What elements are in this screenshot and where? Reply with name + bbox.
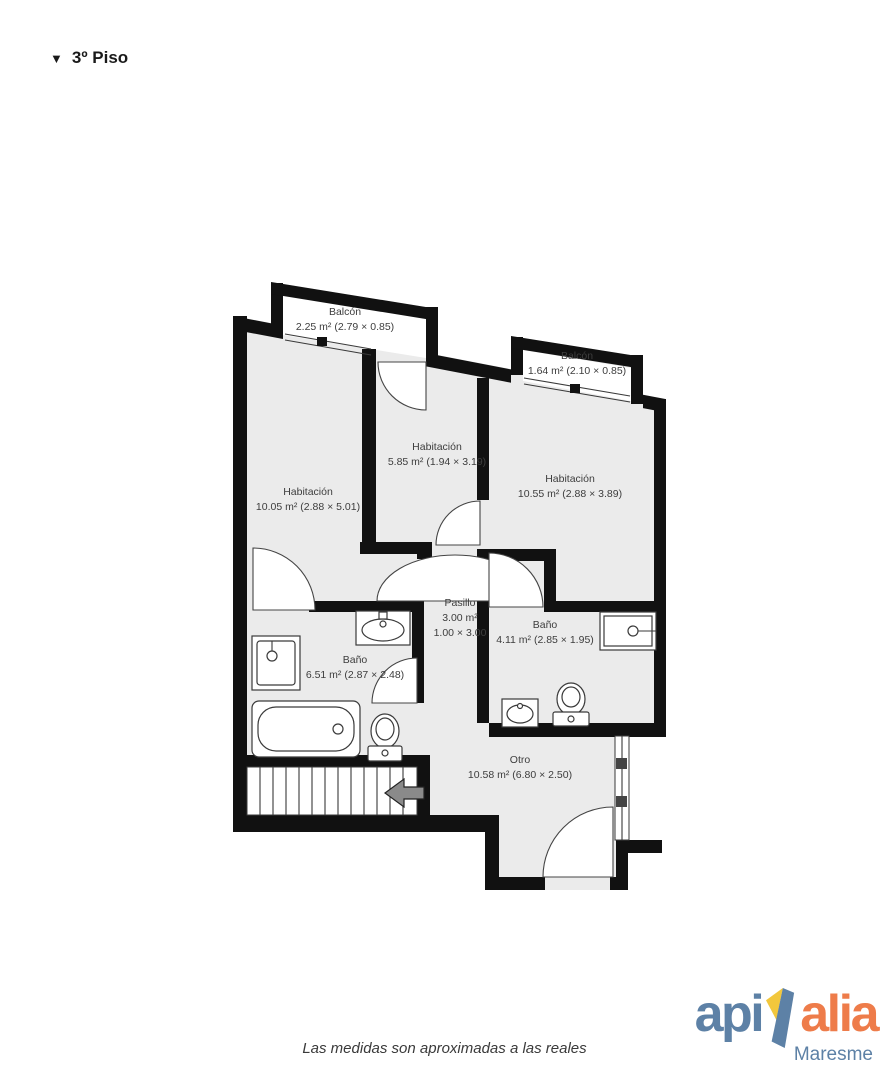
room-details: 10.58 m² (6.80 × 2.50) — [468, 768, 572, 783]
stairs — [247, 767, 424, 815]
room-details: 3.00 m² — [434, 611, 487, 626]
label-bedroom-left: Habitación 10.05 m² (2.88 × 5.01) — [256, 485, 360, 515]
wall-sink-right-faucet — [628, 626, 638, 636]
logo-text-api: api — [695, 988, 763, 1040]
label-balcony-right: Balcón 1.64 m² (2.10 × 0.85) — [528, 349, 626, 379]
vanity-faucet-left — [379, 612, 387, 619]
bottom-right-wall-a — [485, 877, 545, 890]
bedroom-middle-corner-block — [417, 542, 432, 559]
vanity-faucet-dot-left — [380, 621, 386, 627]
toilet-right-button — [568, 716, 574, 722]
room-name: Habitación — [518, 472, 622, 487]
room-details: 5.85 m² (1.94 × 3.19) — [388, 455, 486, 470]
left-wall — [233, 316, 247, 832]
bath-left-top-wall — [309, 601, 415, 612]
label-bathroom-right: Baño 4.11 m² (2.85 × 1.95) — [496, 618, 594, 648]
floor-title: ▼ 3º Piso — [50, 48, 128, 68]
label-bedroom-middle: Habitación 5.85 m² (1.94 × 3.19) — [388, 440, 486, 470]
bottom-left-wall — [233, 815, 499, 832]
label-other: Otro 10.58 m² (6.80 × 2.50) — [468, 753, 572, 783]
label-bathroom-left: Baño 6.51 m² (2.87 × 2.48) — [306, 653, 404, 683]
room-details: 10.55 m² (2.88 × 3.89) — [518, 487, 622, 502]
room-name: Habitación — [388, 440, 486, 455]
bathtub-drain — [333, 724, 343, 734]
railing-right-post — [570, 384, 580, 393]
floorplan-page: ▼ 3º Piso — [0, 0, 889, 1080]
label-hallway: Pasillo 3.00 m² 1.00 × 3.00 — [434, 596, 487, 642]
floorplan-drawing — [0, 0, 889, 1080]
shower-drain — [267, 651, 277, 661]
room-details: 1.00 × 3.00 — [434, 627, 487, 642]
label-balcony-left: Balcón 2.25 m² (2.79 × 0.85) — [296, 305, 394, 335]
right-bottom-lip — [616, 840, 662, 853]
railing-left-post — [317, 337, 327, 346]
right-wall — [654, 399, 666, 734]
room-details: 4.11 m² (2.85 × 1.95) — [496, 633, 594, 648]
room-details: 6.51 m² (2.87 × 2.48) — [306, 668, 404, 683]
divider-left-middle — [362, 349, 376, 542]
logo-text-alia: alia — [800, 988, 877, 1040]
room-details: 10.05 m² (2.88 × 5.01) — [256, 500, 360, 515]
room-name: Pasillo — [434, 596, 487, 611]
logo-door-icon — [764, 988, 798, 1048]
stairs-right-wall — [417, 755, 430, 815]
toilet-left-button — [382, 750, 388, 756]
floor-title-text: 3º Piso — [72, 48, 128, 68]
room-details: 1.64 m² (2.10 × 0.85) — [528, 364, 626, 379]
balcony-right-sidewall-r — [631, 355, 643, 404]
room-name: Otro — [468, 753, 572, 768]
room-details: 2.25 m² (2.79 × 0.85) — [296, 320, 394, 335]
shower-tray-inner — [257, 641, 295, 685]
room-name: Balcón — [296, 305, 394, 320]
room-name: Baño — [496, 618, 594, 633]
toilet-left-bowl-inner — [376, 718, 394, 740]
room-name: Habitación — [256, 485, 360, 500]
toilet-right-bowl-inner — [562, 687, 580, 707]
small-sink-right-faucet — [518, 704, 523, 709]
room-name: Baño — [306, 653, 404, 668]
triangle-marker-icon: ▼ — [50, 52, 63, 65]
balcony-left-sidewall-r — [426, 307, 438, 358]
room-name: Balcón — [528, 349, 626, 364]
agency-logo: api alia Maresme — [662, 988, 877, 1066]
bath-right-top-wall — [544, 601, 666, 612]
window-right-handle-b — [616, 796, 627, 807]
window-right-handle-a — [616, 758, 627, 769]
label-bedroom-right: Habitación 10.55 m² (2.88 × 3.89) — [518, 472, 622, 502]
